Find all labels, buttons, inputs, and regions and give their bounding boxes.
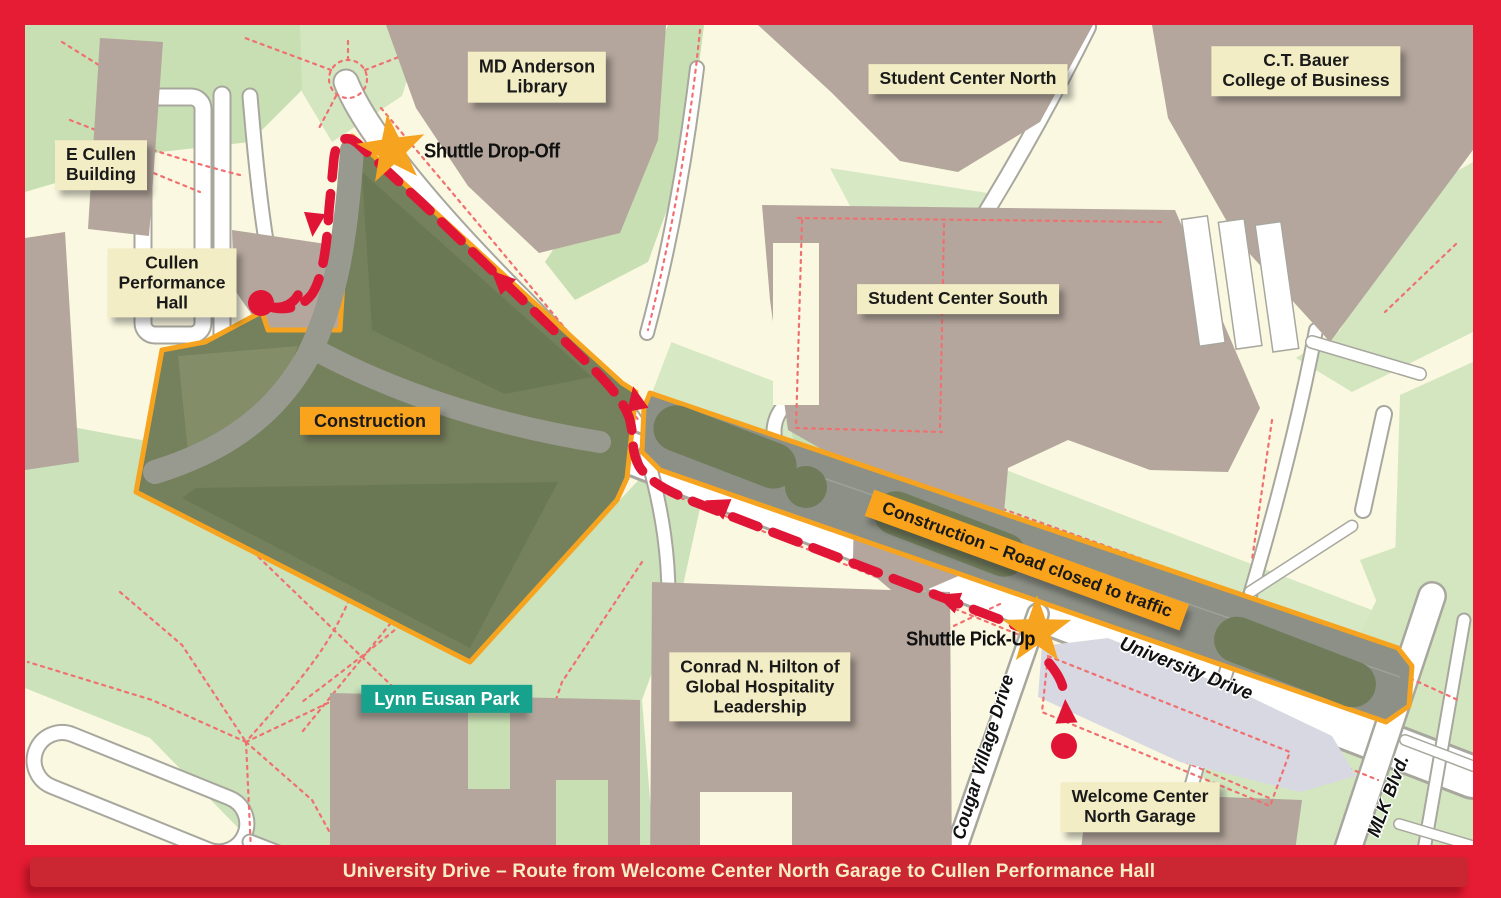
- label-line: Conrad N. Hilton of: [680, 657, 839, 677]
- label-md-anderson-library: MD Anderson Library: [468, 52, 606, 103]
- label-line: North Garage: [1072, 807, 1209, 827]
- label-construction-zone: Construction: [300, 407, 440, 435]
- label-line: Library: [479, 77, 595, 97]
- label-line: MD Anderson: [479, 57, 595, 77]
- label-line: Cullen: [119, 253, 226, 273]
- title-bar: University Drive – Route from Welcome Ce…: [30, 857, 1468, 887]
- label-student-center-north: Student Center North: [869, 64, 1068, 94]
- label-line: Construction: [314, 411, 426, 431]
- label-line: Global Hospitality: [680, 677, 839, 697]
- label-line: Welcome Center: [1072, 787, 1209, 807]
- label-shuttle-drop-off: Shuttle Drop-Off: [424, 141, 560, 164]
- campus-route-poster: MD Anderson Library Student Center North…: [0, 0, 1501, 898]
- poster-title: University Drive – Route from Welcome Ce…: [343, 861, 1156, 883]
- label-ct-bauer: C.T. Bauer College of Business: [1211, 46, 1400, 96]
- label-shuttle-pick-up: Shuttle Pick-Up: [906, 629, 1035, 652]
- route-end-dot: [248, 290, 274, 316]
- label-line: Hall: [119, 293, 226, 313]
- label-lynn-eusan-park: Lynn Eusan Park: [361, 685, 532, 713]
- label-line: College of Business: [1222, 71, 1389, 91]
- label-cullen-performance-hall: Cullen Performance Hall: [108, 248, 237, 317]
- campus-map: [25, 25, 1473, 845]
- label-line: E Cullen: [66, 145, 136, 165]
- label-line: Performance: [119, 273, 226, 293]
- label-student-center-south: Student Center South: [857, 284, 1059, 314]
- label-line: Leadership: [680, 697, 839, 717]
- label-line: Building: [66, 165, 136, 185]
- label-line: C.T. Bauer: [1222, 51, 1389, 71]
- label-conrad-hilton: Conrad N. Hilton of Global Hospitality L…: [669, 652, 850, 721]
- label-line: Student Center South: [868, 289, 1048, 309]
- label-line: Student Center North: [880, 69, 1057, 89]
- route-start-dot: [1051, 733, 1077, 759]
- label-e-cullen-building: E Cullen Building: [55, 140, 147, 190]
- label-line: Lynn Eusan Park: [374, 689, 519, 709]
- label-welcome-center-garage: Welcome Center North Garage: [1061, 782, 1220, 832]
